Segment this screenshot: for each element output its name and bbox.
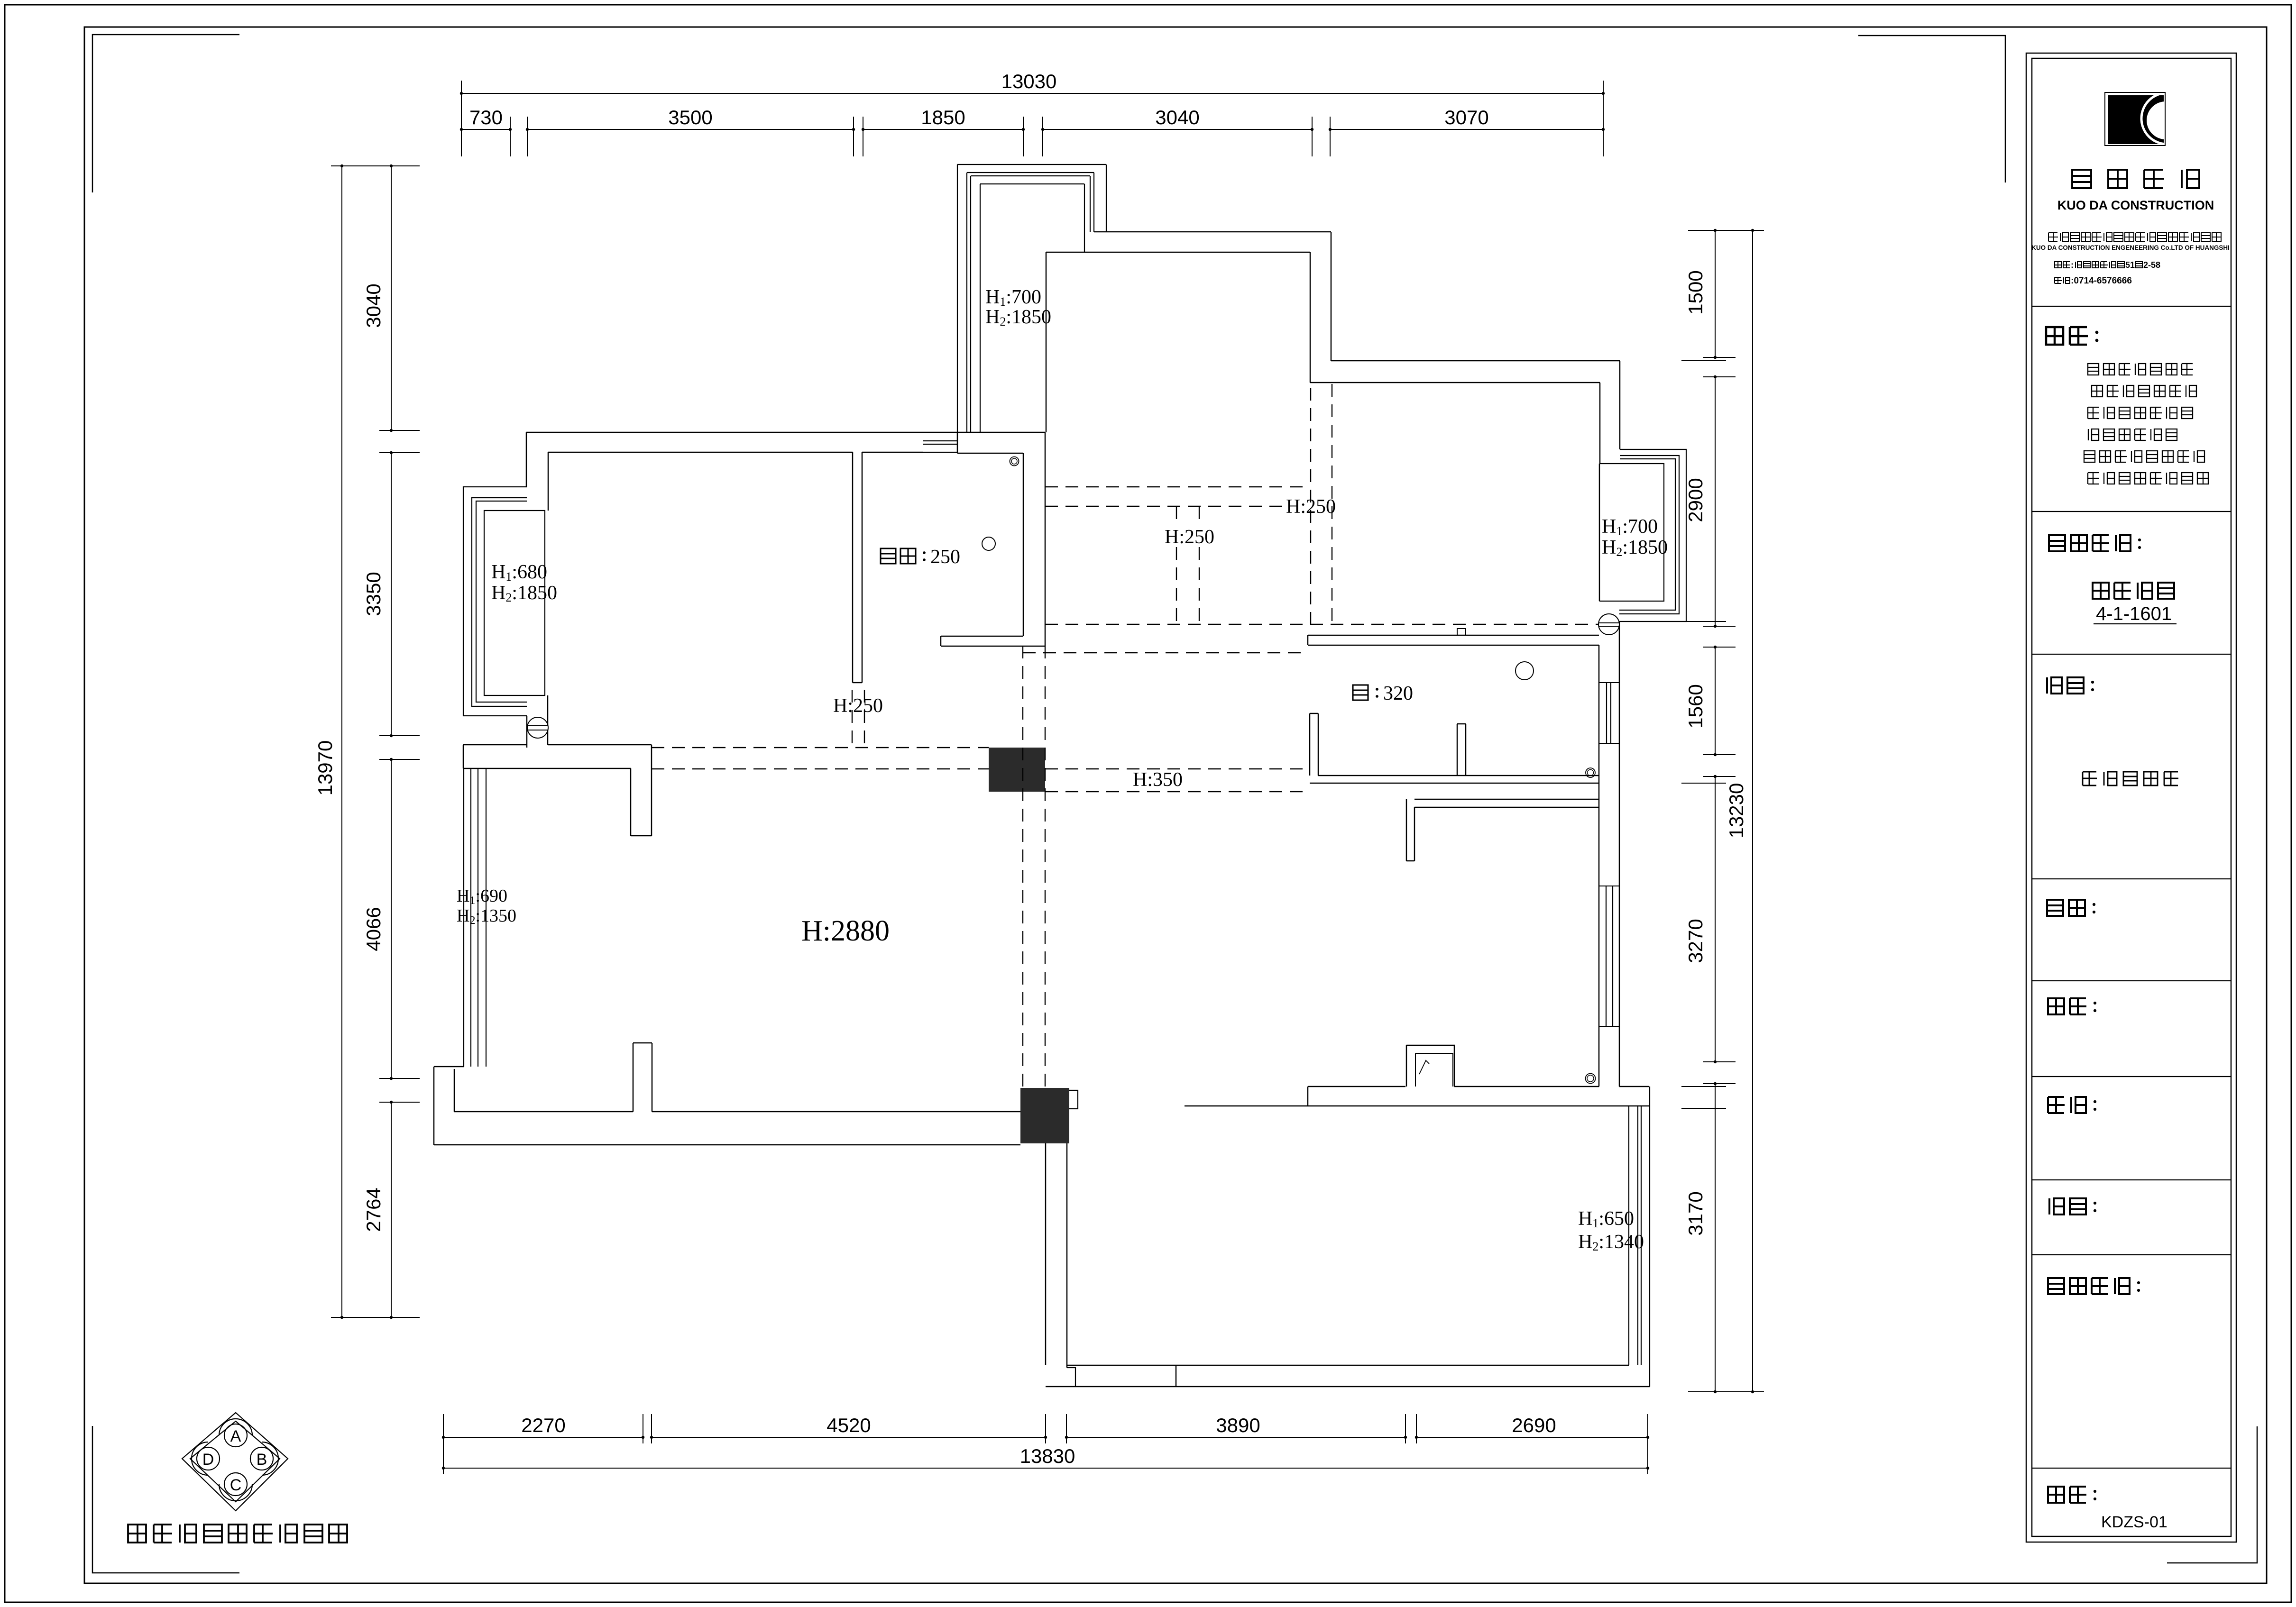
svg-text:H1:700: H1:700 <box>985 286 1041 309</box>
svg-text:13230: 13230 <box>1725 783 1747 839</box>
svg-text:H1:700: H1:700 <box>1602 516 1658 538</box>
svg-text:2690: 2690 <box>1512 1414 1556 1436</box>
svg-text:3890: 3890 <box>1216 1414 1260 1436</box>
svg-text:A: A <box>230 1427 241 1445</box>
svg-text:2-58: 2-58 <box>2143 260 2160 270</box>
svg-text:KUO DA CONSTRUCTION ENGENEERIN: KUO DA CONSTRUCTION ENGENEERING Co.LTD O… <box>2031 244 2230 251</box>
svg-text:3270: 3270 <box>1684 919 1707 963</box>
svg-text:H:250: H:250 <box>1286 496 1336 518</box>
svg-text:B: B <box>257 1451 267 1469</box>
svg-text:H:250: H:250 <box>1165 526 1214 548</box>
svg-text::0714-6576666: :0714-6576666 <box>2071 276 2132 286</box>
svg-text:13030: 13030 <box>1001 70 1057 92</box>
svg-text:4066: 4066 <box>362 907 385 951</box>
svg-text:3040: 3040 <box>1155 106 1199 128</box>
svg-text:320: 320 <box>1383 683 1413 704</box>
svg-text:H:350: H:350 <box>1133 769 1183 791</box>
svg-text:730: 730 <box>469 106 503 128</box>
svg-text:3500: 3500 <box>668 106 712 128</box>
svg-text:3170: 3170 <box>1684 1191 1707 1235</box>
svg-text:3040: 3040 <box>362 283 385 328</box>
svg-text:1850: 1850 <box>921 106 965 128</box>
svg-text:1500: 1500 <box>1684 270 1707 314</box>
svg-text:1560: 1560 <box>1684 684 1707 728</box>
svg-text:D: D <box>202 1451 214 1469</box>
svg-text:C: C <box>230 1476 242 1494</box>
svg-text:H2:1350: H2:1350 <box>457 906 516 927</box>
svg-text:H2:1850: H2:1850 <box>985 306 1051 329</box>
svg-text:13970: 13970 <box>314 740 336 796</box>
svg-text:2764: 2764 <box>362 1187 385 1232</box>
svg-text:H2:1850: H2:1850 <box>491 582 557 604</box>
svg-text:4-1-1601: 4-1-1601 <box>2096 603 2172 624</box>
svg-text:3350: 3350 <box>362 572 385 616</box>
svg-text:3070: 3070 <box>1444 106 1488 128</box>
svg-text:2270: 2270 <box>521 1414 565 1436</box>
svg-text:H:2880: H:2880 <box>801 915 890 947</box>
svg-text:4520: 4520 <box>827 1414 871 1436</box>
svg-text::: : <box>2071 260 2074 270</box>
svg-text:51: 51 <box>2125 260 2135 270</box>
svg-text:H2:1340: H2:1340 <box>1578 1231 1644 1253</box>
svg-text:13830: 13830 <box>1020 1445 1075 1467</box>
svg-text:H1:680: H1:680 <box>491 561 547 584</box>
svg-text:250: 250 <box>930 546 960 568</box>
svg-text:H1:690: H1:690 <box>457 886 507 907</box>
svg-text:H2:1850: H2:1850 <box>1602 537 1668 559</box>
svg-text:2900: 2900 <box>1684 478 1707 522</box>
svg-text:KUO DA CONSTRUCTION: KUO DA CONSTRUCTION <box>2057 198 2214 212</box>
svg-text:KDZS-01: KDZS-01 <box>2101 1513 2167 1531</box>
svg-text:H:250: H:250 <box>833 695 883 717</box>
svg-text:H1:650: H1:650 <box>1578 1208 1634 1230</box>
